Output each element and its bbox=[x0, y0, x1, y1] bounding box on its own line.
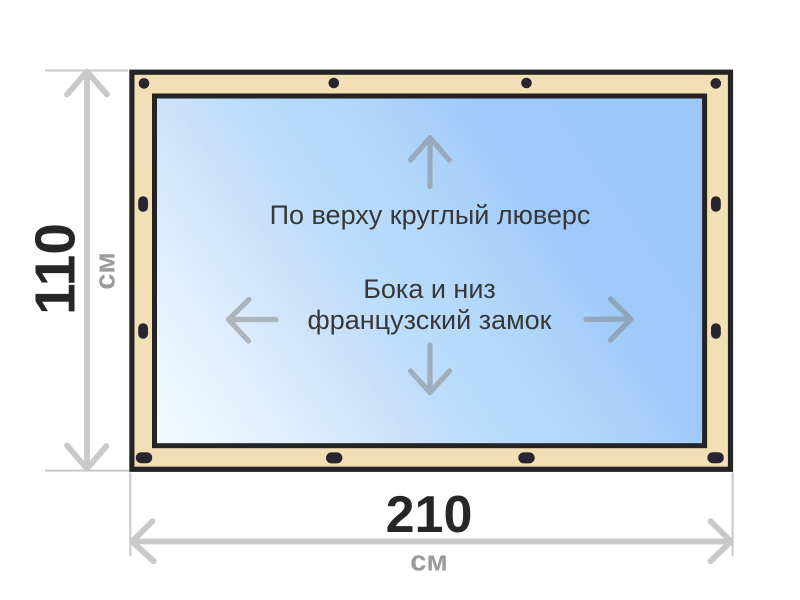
svg-text:см: см bbox=[89, 252, 121, 290]
svg-text:По верху круглый люверс: По верху круглый люверс bbox=[270, 200, 591, 230]
svg-text:110: 110 bbox=[23, 223, 87, 315]
svg-text:210: 210 bbox=[386, 486, 473, 544]
svg-text:французский замок: французский замок bbox=[308, 305, 552, 335]
svg-text:см: см bbox=[410, 546, 448, 578]
svg-text:Бока и низ: Бока и низ bbox=[363, 274, 496, 304]
